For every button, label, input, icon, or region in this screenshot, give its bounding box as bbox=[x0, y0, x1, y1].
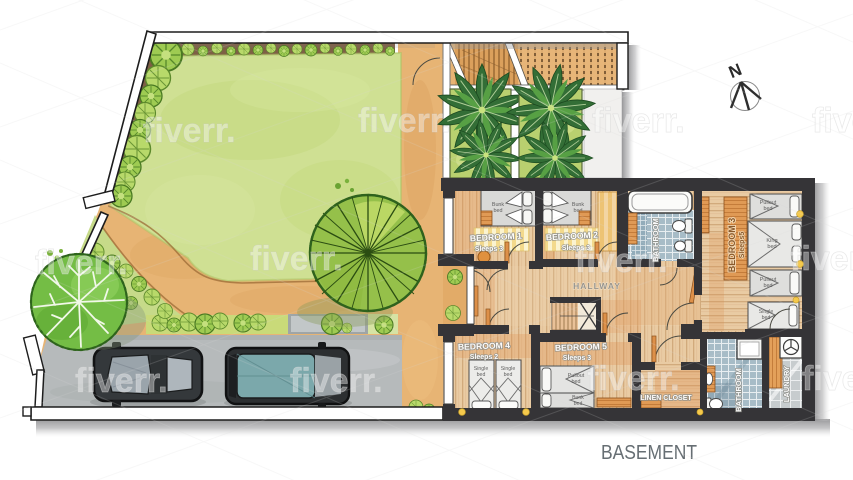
svg-text:LAUNDRY: LAUNDRY bbox=[782, 366, 791, 402]
svg-text:fiverr.: fiverr. bbox=[575, 242, 668, 280]
svg-text:bed: bed bbox=[762, 315, 771, 321]
svg-text:fiverr.: fiverr. bbox=[358, 102, 451, 140]
svg-text:Sleeps5: Sleeps5 bbox=[739, 232, 746, 259]
svg-text:bed: bed bbox=[764, 283, 773, 289]
svg-text:fiverr.: fiverr. bbox=[802, 360, 853, 398]
svg-text:fiverr.: fiverr. bbox=[143, 112, 236, 150]
svg-text:bed: bed bbox=[572, 379, 581, 385]
svg-text:BASEMENT: BASEMENT bbox=[601, 442, 697, 464]
svg-text:BEDROOM 5: BEDROOM 5 bbox=[555, 341, 608, 353]
svg-text:fiverr.: fiverr. bbox=[290, 362, 383, 400]
svg-text:HALLWAY: HALLWAY bbox=[573, 281, 621, 291]
svg-text:bed: bed bbox=[494, 208, 503, 214]
svg-text:Sleeps 2: Sleeps 2 bbox=[470, 354, 499, 361]
svg-text:fiverr.: fiverr. bbox=[812, 102, 853, 140]
svg-text:bed: bed bbox=[764, 206, 773, 212]
svg-text:Sleeps 3: Sleeps 3 bbox=[475, 246, 504, 253]
svg-text:bed: bed bbox=[477, 372, 486, 378]
svg-text:fiverr.: fiverr. bbox=[75, 362, 168, 400]
svg-text:BEDROOM 3: BEDROOM 3 bbox=[727, 218, 737, 273]
svg-text:fiverr.: fiverr. bbox=[592, 102, 685, 140]
svg-text:fiverr.: fiverr. bbox=[790, 240, 853, 278]
svg-text:fiverr.: fiverr. bbox=[250, 240, 343, 278]
svg-text:bed: bed bbox=[767, 244, 776, 250]
svg-text:fiverr.: fiverr. bbox=[587, 360, 680, 398]
svg-text:BEDROOM 4: BEDROOM 4 bbox=[458, 340, 511, 352]
svg-text:BATHROOM: BATHROOM bbox=[734, 368, 743, 412]
svg-text:fiverr.: fiverr. bbox=[35, 244, 128, 282]
